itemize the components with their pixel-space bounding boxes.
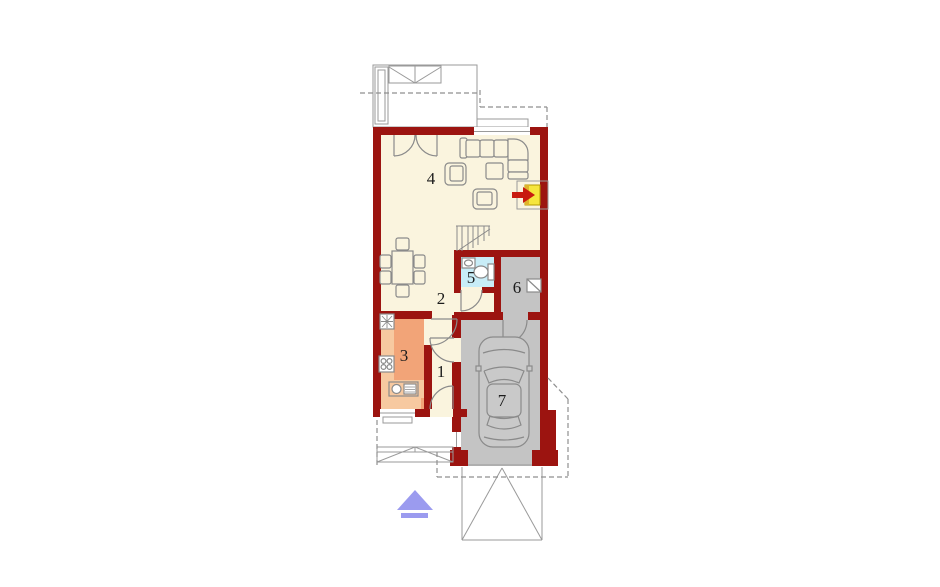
room-6-label: 6: [513, 278, 522, 297]
entrance-porch-steps: [377, 447, 453, 462]
hob: [379, 356, 394, 372]
wall-right: [540, 127, 548, 413]
toilet: [474, 264, 494, 280]
terrace: [373, 65, 477, 127]
driveway: [462, 467, 542, 540]
utility-symbol: [527, 279, 541, 292]
floor-plan-drawing: 1 2 3 4 5 6 7: [0, 0, 940, 587]
armchair-1: [445, 163, 466, 185]
car-mirror-left: [476, 366, 481, 371]
wall-bath-left: [454, 250, 461, 293]
dining-table: [392, 251, 413, 284]
wall-garage-top: [454, 312, 544, 320]
window-garage: [452, 432, 461, 447]
wall-right-lower: [540, 410, 556, 453]
window-living-top: [474, 119, 530, 135]
coffee-table: [486, 163, 503, 179]
terrace-steps: [389, 66, 441, 83]
car-mirror-right: [527, 366, 532, 371]
stove: [380, 314, 394, 329]
window-kitchen: [380, 409, 415, 423]
terrace-column: [375, 67, 388, 124]
sink: [462, 258, 475, 268]
wall-bath-right: [494, 250, 501, 320]
room-1-label: 1: [437, 362, 446, 381]
entrance-arrow-icon: [397, 490, 433, 518]
room-4-label: 4: [427, 169, 436, 188]
armchair-2: [473, 189, 497, 209]
wall-garage-left: [452, 315, 461, 452]
room-5-label: 5: [467, 268, 476, 287]
floor-plan-page: 1 2 3 4 5 6 7: [0, 0, 940, 587]
room-7-label: 7: [498, 391, 507, 410]
room-2-label: 2: [437, 289, 446, 308]
garage-pillar-right: [532, 450, 558, 466]
room-3-label: 3: [400, 346, 409, 365]
kitchen-sink: [389, 382, 418, 396]
